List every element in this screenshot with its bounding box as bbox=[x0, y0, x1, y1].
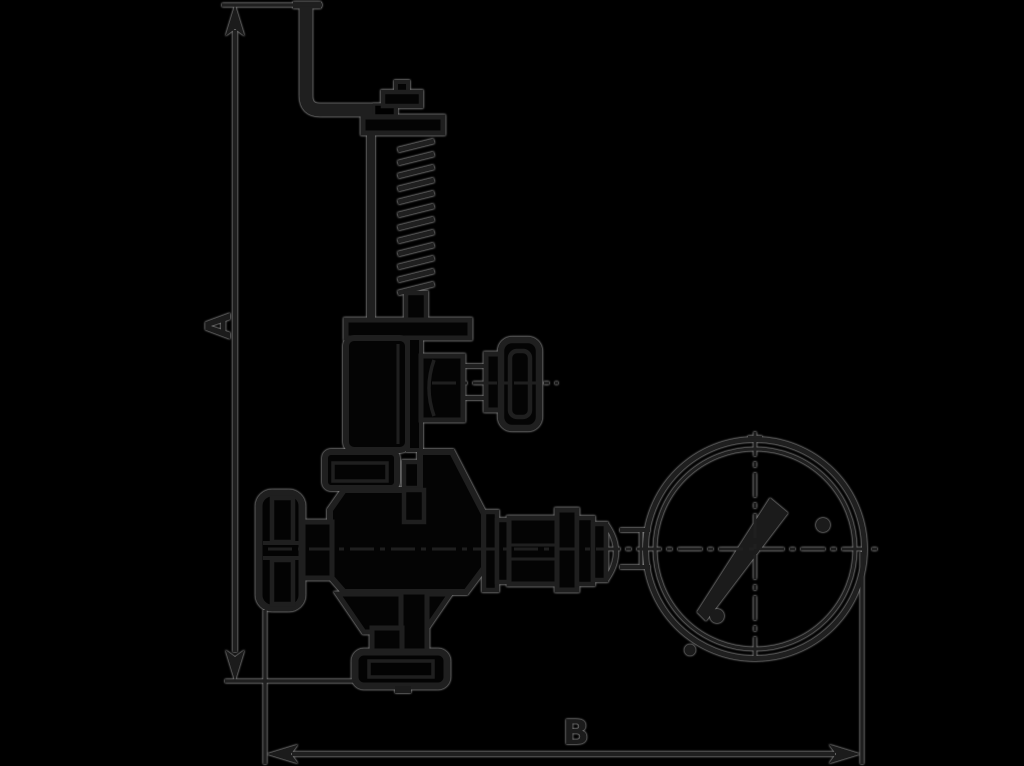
drawing-canvas: A B bbox=[0, 0, 1024, 766]
bonnet-lower-flange bbox=[325, 452, 422, 488]
dome-fitting bbox=[606, 524, 616, 580]
outlet-pipe bbox=[401, 592, 427, 654]
dim-a-label: A bbox=[199, 312, 239, 339]
valve-assembly bbox=[259, 5, 650, 693]
spring-section bbox=[371, 133, 434, 329]
gauge-needle bbox=[697, 498, 788, 621]
gauge-dot bbox=[710, 609, 724, 623]
outlet-nut bbox=[372, 628, 402, 652]
dim-a-arrow-down bbox=[226, 650, 245, 681]
spring-coils bbox=[398, 141, 434, 293]
dim-b-label: B bbox=[563, 713, 589, 753]
outlet bbox=[338, 592, 450, 693]
gauge-dot bbox=[816, 518, 830, 532]
valve-technical-drawing: A B bbox=[0, 0, 1024, 766]
gauge-dot bbox=[685, 645, 696, 656]
inner-spindle bbox=[404, 490, 424, 522]
